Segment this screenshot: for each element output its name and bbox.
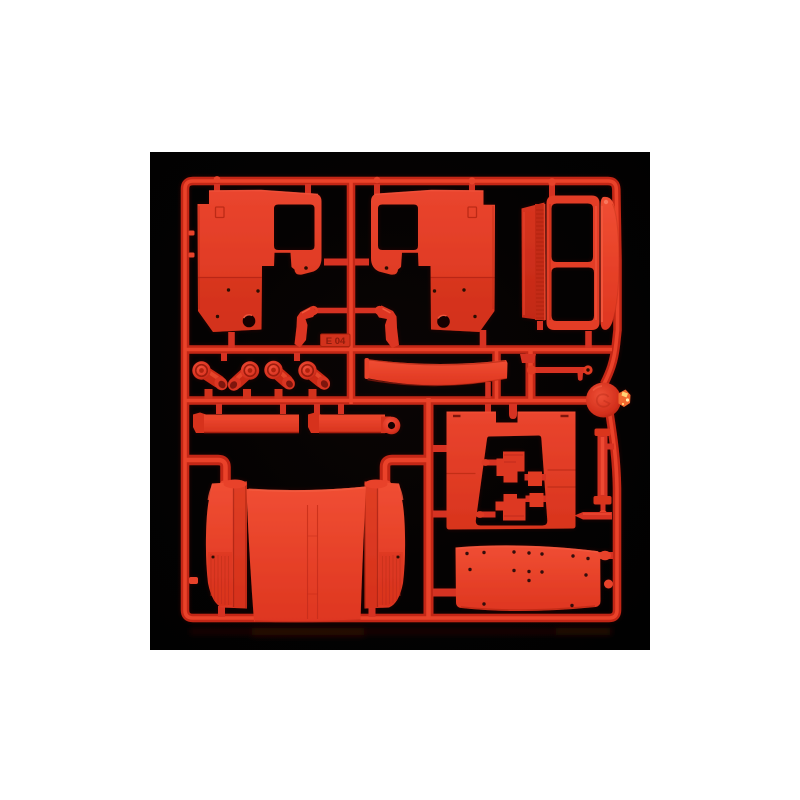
svg-text:E 04: E 04	[326, 336, 346, 347]
